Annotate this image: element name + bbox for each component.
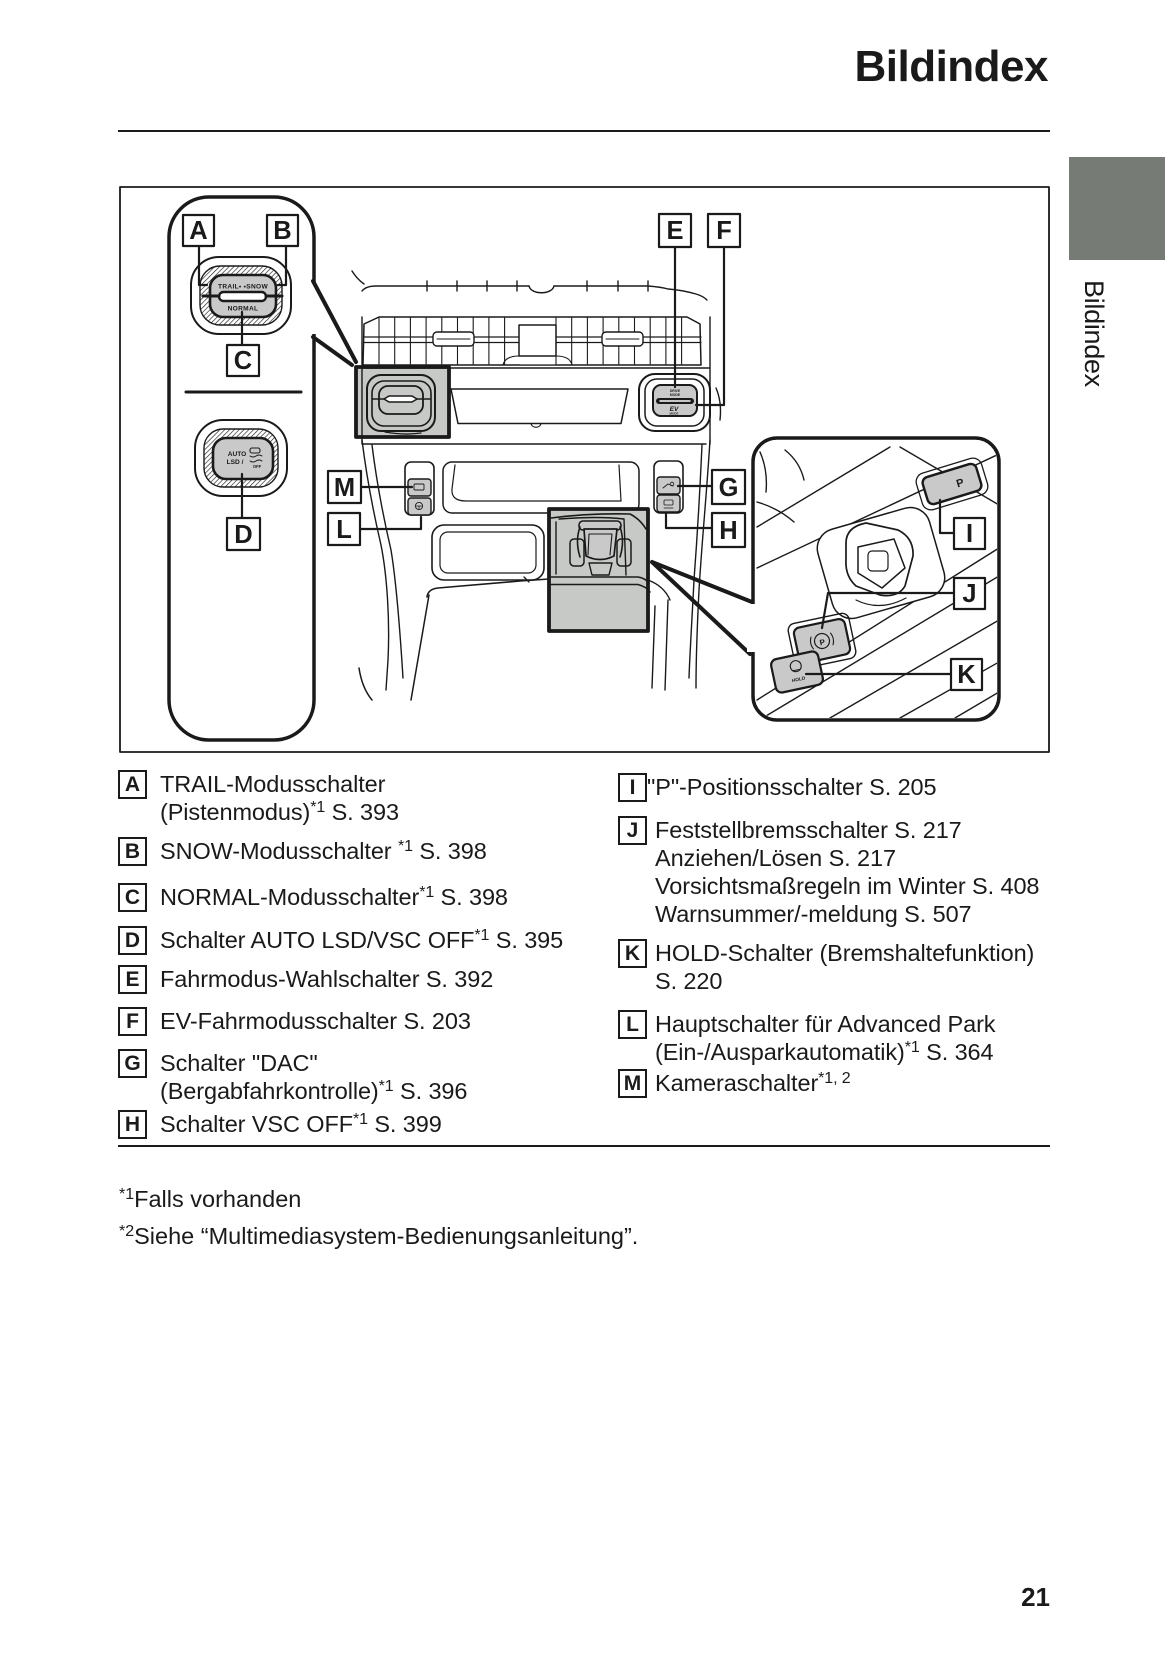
svg-text:MODE: MODE [670,393,681,397]
svg-text:L: L [336,516,352,544]
svg-text:C: C [234,347,252,375]
svg-text:H: H [719,517,737,545]
svg-text:LSD /: LSD / [227,459,244,466]
svg-text:K: K [957,661,976,689]
svg-text:AUTO: AUTO [228,451,247,458]
svg-text:MODE: MODE [670,412,679,416]
svg-text:G: G [719,474,739,502]
svg-text:TRAIL• •SNOW: TRAIL• •SNOW [218,284,268,291]
svg-text:B: B [273,217,291,245]
svg-text:OFF: OFF [253,464,262,469]
svg-text:NORMAL: NORMAL [228,306,259,313]
svg-text:A: A [189,217,207,245]
svg-text:D: D [234,521,252,549]
svg-text:J: J [962,580,976,608]
svg-text:I: I [966,520,973,548]
svg-text:E: E [666,217,683,245]
svg-text:M: M [334,474,355,502]
svg-text:F: F [716,217,732,245]
